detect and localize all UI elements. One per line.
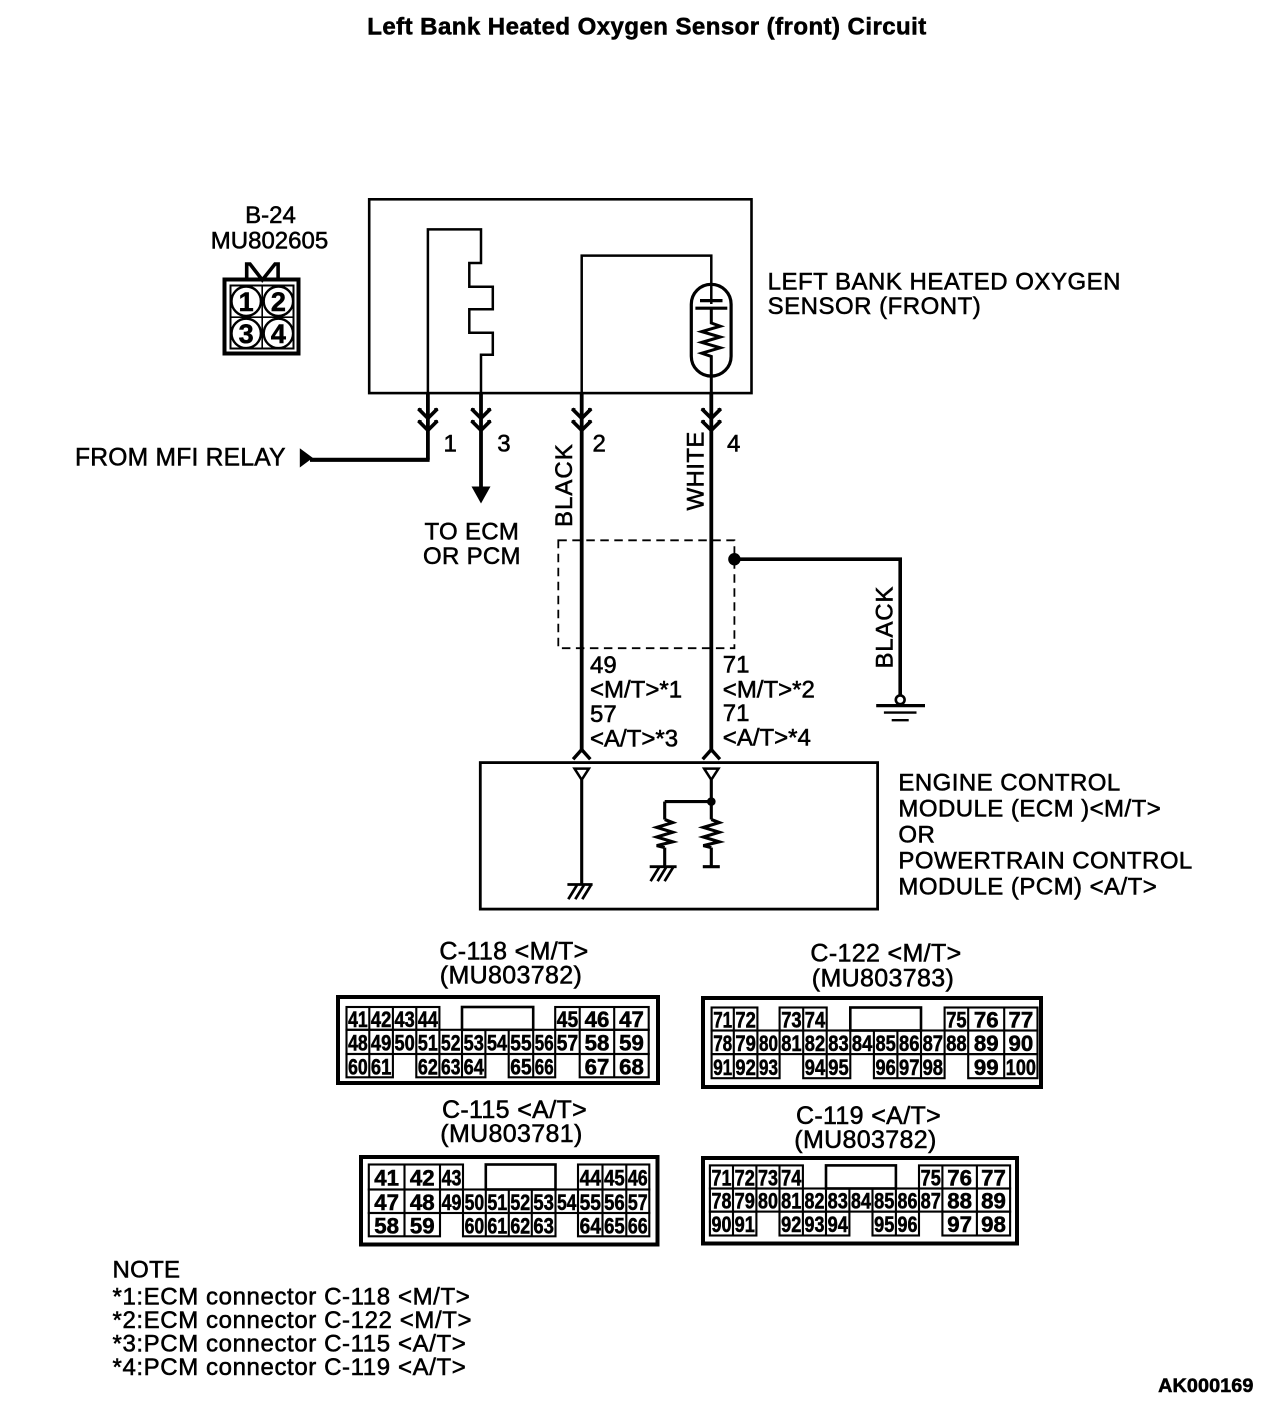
svg-text:71: 71: [712, 1166, 732, 1191]
svg-text:90: 90: [1009, 1031, 1034, 1056]
svg-text:85: 85: [876, 1031, 896, 1056]
svg-text:89: 89: [981, 1189, 1006, 1214]
svg-text:85: 85: [874, 1189, 894, 1214]
svg-text:<M/T>*1: <M/T>*1: [590, 677, 682, 704]
svg-text:WHITE: WHITE: [682, 431, 709, 510]
svg-text:94: 94: [828, 1212, 849, 1237]
svg-text:46: 46: [585, 1007, 610, 1032]
svg-text:47: 47: [374, 1190, 399, 1215]
svg-text:4: 4: [271, 319, 286, 349]
svg-text:73: 73: [781, 1008, 801, 1033]
svg-text:62: 62: [418, 1054, 438, 1079]
svg-text:OR: OR: [898, 822, 935, 849]
svg-text:<A/T>*4: <A/T>*4: [723, 724, 811, 751]
svg-text:49: 49: [442, 1190, 462, 1215]
svg-text:71: 71: [713, 1008, 732, 1033]
svg-text:45: 45: [604, 1166, 625, 1191]
svg-text:87: 87: [921, 1189, 941, 1214]
svg-text:63: 63: [533, 1213, 554, 1238]
svg-text:58: 58: [374, 1213, 399, 1238]
svg-text:81: 81: [781, 1031, 801, 1056]
svg-text:44: 44: [580, 1166, 602, 1191]
svg-text:100: 100: [1006, 1055, 1036, 1080]
svg-text:(MU803781): (MU803781): [440, 1120, 582, 1148]
svg-text:64: 64: [580, 1213, 602, 1238]
svg-text:<A/T>*3: <A/T>*3: [590, 725, 678, 752]
svg-text:98: 98: [923, 1055, 943, 1080]
svg-text:62: 62: [510, 1213, 530, 1238]
svg-text:80: 80: [758, 1189, 778, 1214]
svg-text:97: 97: [899, 1055, 919, 1080]
svg-text:54: 54: [487, 1031, 508, 1056]
svg-text:49: 49: [590, 652, 617, 679]
svg-text:53: 53: [533, 1190, 554, 1215]
svg-text:57: 57: [557, 1031, 578, 1056]
svg-text:78: 78: [713, 1031, 732, 1056]
svg-text:82: 82: [805, 1189, 825, 1214]
svg-text:75: 75: [921, 1166, 941, 1191]
svg-text:41: 41: [348, 1007, 368, 1032]
svg-text:79: 79: [735, 1031, 755, 1056]
svg-text:57: 57: [628, 1190, 648, 1215]
svg-text:(MU803782): (MU803782): [794, 1126, 936, 1154]
svg-text:43: 43: [442, 1166, 462, 1191]
svg-text:84: 84: [851, 1189, 871, 1214]
svg-text:47: 47: [619, 1007, 644, 1032]
svg-text:48: 48: [348, 1031, 368, 1056]
svg-text:68: 68: [619, 1054, 644, 1079]
svg-text:POWERTRAIN CONTROL: POWERTRAIN CONTROL: [898, 848, 1192, 875]
svg-text:(MU803783): (MU803783): [812, 965, 954, 993]
svg-text:83: 83: [828, 1189, 848, 1214]
svg-text:56: 56: [535, 1031, 554, 1056]
svg-text:86: 86: [899, 1031, 919, 1056]
svg-text:53: 53: [464, 1031, 484, 1056]
svg-text:96: 96: [898, 1212, 918, 1237]
svg-text:71: 71: [723, 700, 750, 727]
svg-text:54: 54: [557, 1190, 577, 1215]
svg-text:78: 78: [712, 1189, 732, 1214]
svg-text:97: 97: [947, 1212, 972, 1237]
svg-text:82: 82: [805, 1031, 825, 1056]
svg-text:49: 49: [371, 1031, 391, 1056]
svg-text:93: 93: [759, 1055, 778, 1080]
svg-text:*4:PCM connector C-119 <A/T>: *4:PCM connector C-119 <A/T>: [113, 1354, 467, 1381]
svg-text:73: 73: [758, 1166, 778, 1191]
svg-text:55: 55: [510, 1031, 531, 1056]
svg-text:72: 72: [735, 1166, 755, 1191]
svg-text:80: 80: [759, 1031, 778, 1056]
svg-text:3: 3: [497, 431, 510, 458]
svg-text:91: 91: [735, 1212, 755, 1237]
svg-text:94: 94: [805, 1055, 826, 1080]
svg-text:92: 92: [781, 1212, 801, 1237]
svg-text:41: 41: [374, 1166, 399, 1191]
svg-text:99: 99: [974, 1055, 999, 1080]
svg-text:52: 52: [441, 1031, 460, 1056]
svg-text:92: 92: [735, 1055, 755, 1080]
svg-text:91: 91: [713, 1055, 732, 1080]
svg-text:65: 65: [604, 1213, 625, 1238]
svg-text:84: 84: [852, 1031, 873, 1056]
svg-text:89: 89: [974, 1031, 999, 1056]
svg-text:ENGINE CONTROL: ENGINE CONTROL: [898, 770, 1120, 797]
svg-text:61: 61: [487, 1213, 507, 1238]
svg-text:MODULE (ECM )<M/T>: MODULE (ECM )<M/T>: [898, 796, 1161, 823]
svg-text:3: 3: [239, 319, 254, 349]
svg-text:65: 65: [510, 1054, 531, 1079]
svg-text:NOTE: NOTE: [113, 1257, 181, 1284]
svg-text:48: 48: [410, 1190, 435, 1215]
svg-text:59: 59: [410, 1213, 435, 1238]
svg-text:67: 67: [585, 1054, 610, 1079]
svg-text:59: 59: [619, 1031, 644, 1056]
svg-text:87: 87: [923, 1031, 943, 1056]
svg-text:75: 75: [946, 1008, 966, 1033]
svg-text:56: 56: [604, 1190, 625, 1215]
svg-text:4: 4: [727, 431, 740, 458]
svg-text:52: 52: [510, 1190, 530, 1215]
svg-text:44: 44: [418, 1007, 438, 1032]
svg-text:50: 50: [465, 1190, 485, 1215]
svg-text:57: 57: [590, 701, 617, 728]
svg-text:50: 50: [395, 1031, 415, 1056]
svg-text:76: 76: [974, 1008, 999, 1033]
svg-text:83: 83: [828, 1031, 848, 1056]
svg-text:MU802605: MU802605: [211, 228, 328, 255]
svg-text:74: 74: [781, 1166, 802, 1191]
svg-text:MODULE (PCM) <A/T>: MODULE (PCM) <A/T>: [898, 874, 1157, 901]
svg-text:76: 76: [947, 1166, 972, 1191]
svg-text:58: 58: [585, 1031, 610, 1056]
svg-text:Left Bank Heated Oxygen Sensor: Left Bank Heated Oxygen Sensor (front) C…: [367, 14, 926, 41]
svg-text:79: 79: [735, 1189, 755, 1214]
svg-text:42: 42: [371, 1007, 391, 1032]
svg-text:63: 63: [441, 1054, 460, 1079]
svg-text:SENSOR (FRONT): SENSOR (FRONT): [768, 293, 982, 320]
svg-text:OR PCM: OR PCM: [423, 543, 521, 570]
svg-text:77: 77: [1009, 1008, 1034, 1033]
svg-text:74: 74: [805, 1008, 826, 1033]
svg-text:95: 95: [828, 1055, 848, 1080]
svg-text:51: 51: [418, 1031, 438, 1056]
svg-text:88: 88: [947, 1189, 972, 1214]
svg-text:42: 42: [410, 1166, 435, 1191]
svg-text:1: 1: [444, 431, 457, 458]
svg-text:FROM MFI RELAY: FROM MFI RELAY: [75, 445, 286, 472]
svg-text:51: 51: [487, 1190, 507, 1215]
svg-text:96: 96: [876, 1055, 896, 1080]
svg-text:43: 43: [395, 1007, 415, 1032]
svg-text:AK000169: AK000169: [1158, 1375, 1253, 1397]
svg-text:46: 46: [628, 1166, 648, 1191]
svg-text:LEFT BANK HEATED OXYGEN: LEFT BANK HEATED OXYGEN: [768, 269, 1121, 296]
svg-text:BLACK: BLACK: [551, 443, 578, 527]
svg-text:95: 95: [874, 1212, 894, 1237]
svg-text:C-122 <M/T>: C-122 <M/T>: [810, 940, 961, 968]
svg-text:71: 71: [723, 652, 750, 679]
svg-text:TO ECM: TO ECM: [425, 519, 520, 546]
svg-text:81: 81: [781, 1189, 801, 1214]
svg-text:B-24: B-24: [245, 202, 296, 229]
svg-text:60: 60: [465, 1213, 485, 1238]
svg-text:BLACK: BLACK: [871, 586, 898, 669]
svg-text:61: 61: [371, 1054, 391, 1079]
svg-text:1: 1: [239, 287, 254, 317]
svg-text:93: 93: [805, 1212, 825, 1237]
svg-text:66: 66: [535, 1054, 554, 1079]
svg-text:88: 88: [946, 1031, 966, 1056]
svg-text:86: 86: [898, 1189, 918, 1214]
svg-text:66: 66: [628, 1213, 648, 1238]
svg-text:45: 45: [557, 1007, 578, 1032]
svg-text:2: 2: [593, 431, 606, 458]
svg-text:72: 72: [735, 1008, 755, 1033]
svg-text:(MU803782): (MU803782): [440, 962, 582, 990]
svg-text:60: 60: [348, 1054, 368, 1079]
svg-text:2: 2: [271, 287, 286, 317]
svg-text:64: 64: [464, 1054, 485, 1079]
svg-text:77: 77: [981, 1166, 1006, 1191]
svg-text:55: 55: [580, 1190, 601, 1215]
svg-text:98: 98: [981, 1212, 1006, 1237]
svg-text:90: 90: [712, 1212, 732, 1237]
